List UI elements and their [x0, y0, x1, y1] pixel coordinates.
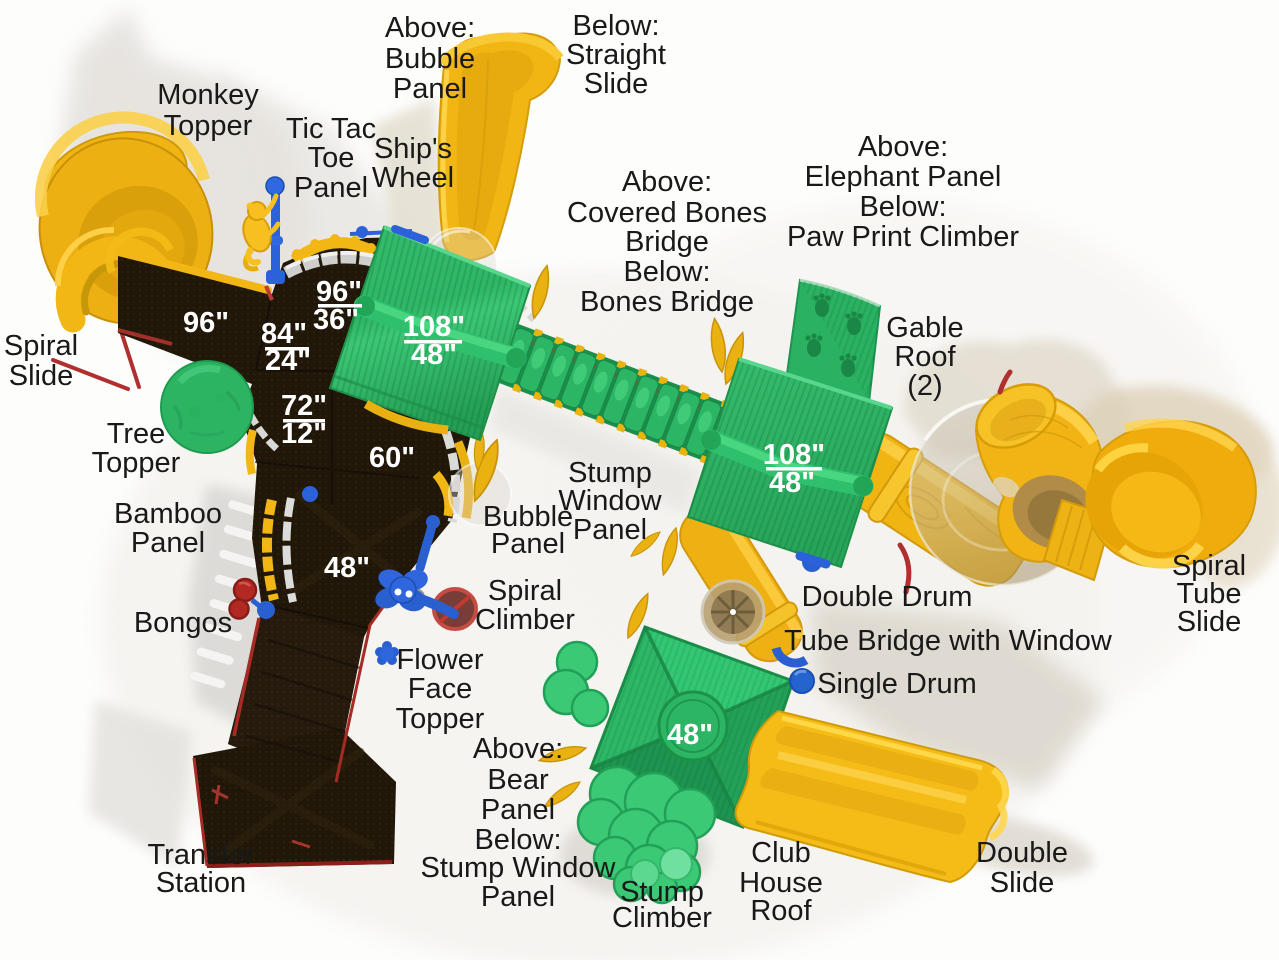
svg-text:Panel: Panel — [573, 514, 647, 546]
svg-text:Slide: Slide — [9, 360, 74, 392]
svg-text:Above:: Above: — [858, 131, 948, 163]
svg-text:Club: Club — [751, 837, 811, 869]
svg-text:Flower: Flower — [396, 644, 483, 676]
svg-text:Covered Bones: Covered Bones — [567, 197, 767, 229]
svg-text:Below:: Below: — [859, 191, 946, 223]
svg-text:Panel: Panel — [131, 527, 205, 559]
svg-text:Wheel: Wheel — [372, 162, 454, 194]
svg-text:Panel: Panel — [491, 528, 565, 560]
svg-text:Paw Print Climber: Paw Print Climber — [787, 221, 1019, 253]
svg-text:Climber: Climber — [475, 604, 575, 636]
svg-text:Topper: Topper — [396, 703, 485, 735]
svg-text:Topper: Topper — [92, 447, 181, 479]
svg-text:Bridge: Bridge — [625, 226, 709, 258]
svg-text:Panel: Panel — [481, 794, 555, 826]
svg-text:48": 48" — [769, 467, 815, 499]
svg-text:Face: Face — [408, 673, 472, 705]
svg-text:Bones Bridge: Bones Bridge — [580, 286, 754, 318]
svg-text:Slide: Slide — [990, 867, 1055, 899]
svg-text:Monkey: Monkey — [157, 79, 259, 111]
svg-text:Stump Window: Stump Window — [420, 852, 616, 884]
svg-text:Slide: Slide — [1177, 606, 1242, 638]
svg-text:Panel: Panel — [294, 172, 368, 204]
svg-text:Double Drum: Double Drum — [802, 581, 973, 613]
svg-text:Below:: Below: — [623, 256, 710, 288]
svg-text:Topper: Topper — [164, 110, 253, 142]
svg-text:Spiral: Spiral — [4, 330, 78, 362]
svg-text:48": 48" — [667, 719, 713, 751]
svg-text:Double: Double — [976, 837, 1068, 869]
svg-text:60": 60" — [369, 442, 415, 474]
svg-text:Station: Station — [156, 867, 246, 899]
svg-text:Toe: Toe — [308, 142, 355, 174]
svg-text:Above:: Above: — [385, 12, 475, 44]
svg-text:Gable: Gable — [886, 312, 963, 344]
svg-text:Straight: Straight — [566, 39, 666, 71]
svg-text:Panel: Panel — [393, 73, 467, 105]
svg-text:Spiral: Spiral — [488, 575, 562, 607]
svg-text:Above:: Above: — [473, 733, 563, 765]
svg-text:Panel: Panel — [481, 881, 555, 913]
svg-text:Tree: Tree — [107, 418, 166, 450]
svg-text:36": 36" — [313, 304, 359, 336]
svg-text:Slide: Slide — [584, 68, 649, 100]
svg-text:Elephant Panel: Elephant Panel — [805, 161, 1002, 193]
svg-text:Bubble: Bubble — [385, 43, 475, 75]
svg-text:Bear: Bear — [487, 764, 549, 796]
svg-text:24": 24" — [265, 345, 311, 377]
svg-text:Roof: Roof — [894, 341, 956, 373]
svg-text:Climber: Climber — [612, 902, 712, 934]
svg-text:48": 48" — [324, 552, 370, 584]
svg-text:Roof: Roof — [750, 895, 812, 927]
svg-text:12": 12" — [281, 418, 327, 450]
svg-text:Tic Tac: Tic Tac — [286, 113, 376, 145]
svg-text:Bongos: Bongos — [134, 607, 232, 639]
svg-text:Above:: Above: — [622, 166, 712, 198]
svg-text:96": 96" — [183, 307, 229, 339]
svg-text:Single Drum: Single Drum — [817, 668, 977, 700]
svg-text:Ship's: Ship's — [374, 133, 452, 165]
svg-text:48": 48" — [411, 339, 457, 371]
svg-text:Bamboo: Bamboo — [114, 498, 222, 530]
svg-text:Below:: Below: — [572, 10, 659, 42]
svg-text:Window: Window — [558, 485, 662, 517]
svg-text:Tube Bridge with Window: Tube Bridge with Window — [784, 625, 1113, 657]
svg-text:(2): (2) — [907, 370, 942, 402]
